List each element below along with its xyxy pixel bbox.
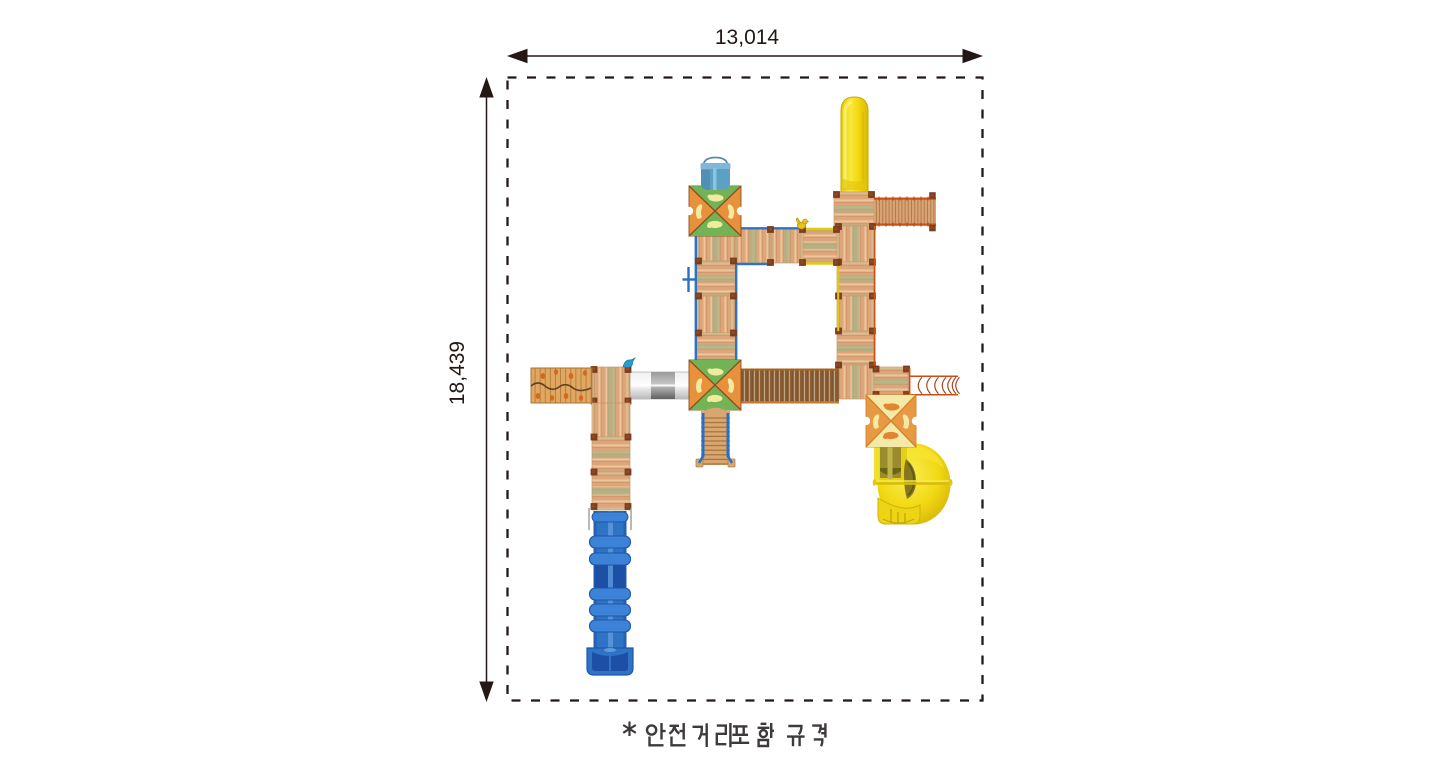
svg-text:18,439: 18,439 [446,341,469,405]
svg-text:13,014: 13,014 [715,26,780,49]
